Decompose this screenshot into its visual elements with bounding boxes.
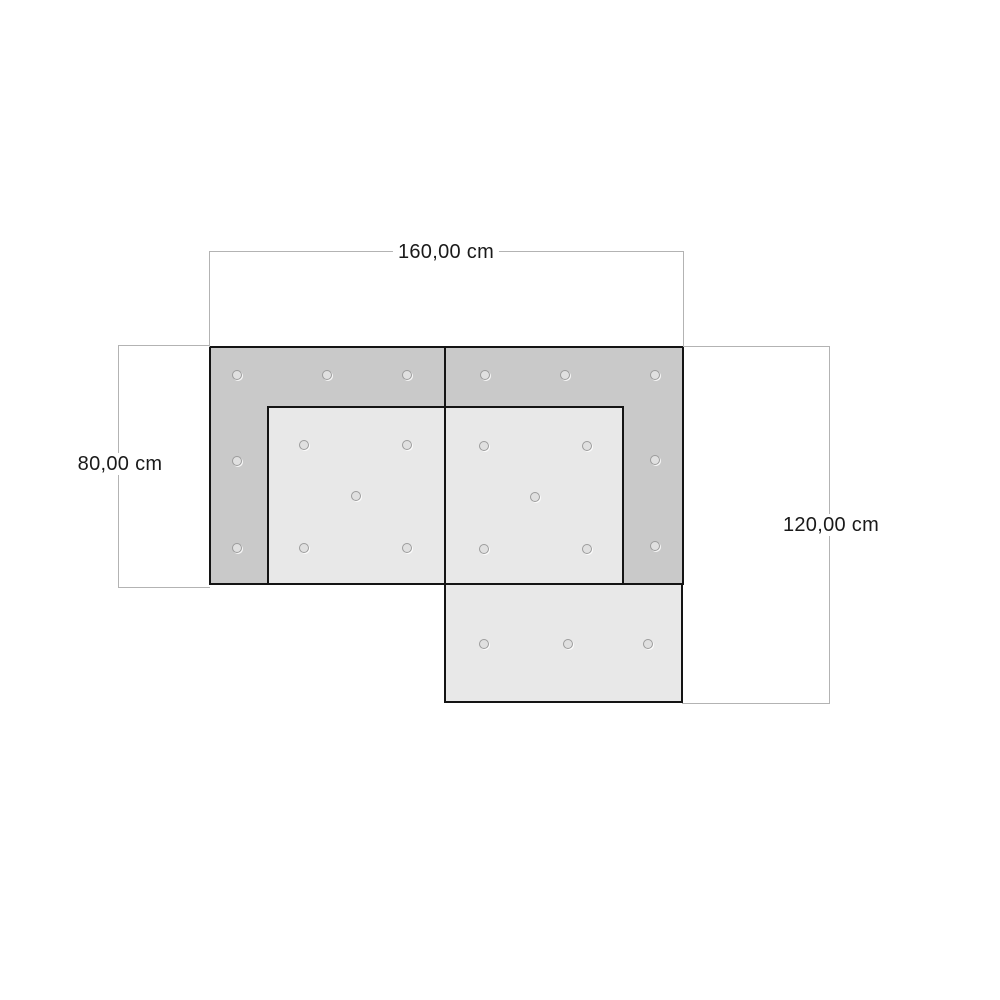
tufting-button-icon <box>402 440 412 450</box>
tufting-button-icon <box>560 370 570 380</box>
tufting-button-icon <box>232 543 242 553</box>
tufting-button-icon <box>322 370 332 380</box>
tufting-button-icon <box>299 543 309 553</box>
tufting-button-icon <box>232 370 242 380</box>
tufting-button-icon <box>582 544 592 554</box>
module-divider-line <box>444 346 446 585</box>
tufting-button-icon <box>479 544 489 554</box>
tufting-button-icon <box>351 491 361 501</box>
tufting-button-icon <box>402 370 412 380</box>
tufting-button-icon <box>299 440 309 450</box>
tufting-button-icon <box>232 456 242 466</box>
extension-line-top-right <box>683 251 684 347</box>
tufting-button-icon <box>479 639 489 649</box>
tufting-button-icon <box>650 455 660 465</box>
tufting-button-icon <box>402 543 412 553</box>
tufting-button-icon <box>650 541 660 551</box>
tufting-button-icon <box>479 441 489 451</box>
extension-line-top-left <box>209 251 210 347</box>
tufting-button-icon <box>582 441 592 451</box>
dimension-label-left-height: 80,00 cm <box>73 453 168 475</box>
tufting-button-icon <box>650 370 660 380</box>
furniture-dimension-diagram: 160,00 cm 80,00 cm 120,00 cm <box>0 0 1000 1000</box>
tufting-button-icon <box>563 639 573 649</box>
tufting-button-icon <box>643 639 653 649</box>
tufting-button-icon <box>530 492 540 502</box>
extension-line-right-bottom <box>682 703 830 704</box>
dimension-label-right-height: 120,00 cm <box>778 514 884 536</box>
extension-line-right-top <box>683 346 829 347</box>
dimension-label-top-width: 160,00 cm <box>393 241 499 263</box>
tufting-button-icon <box>480 370 490 380</box>
extension-line-left-top <box>118 345 210 346</box>
extension-line-left-bottom <box>118 587 210 588</box>
